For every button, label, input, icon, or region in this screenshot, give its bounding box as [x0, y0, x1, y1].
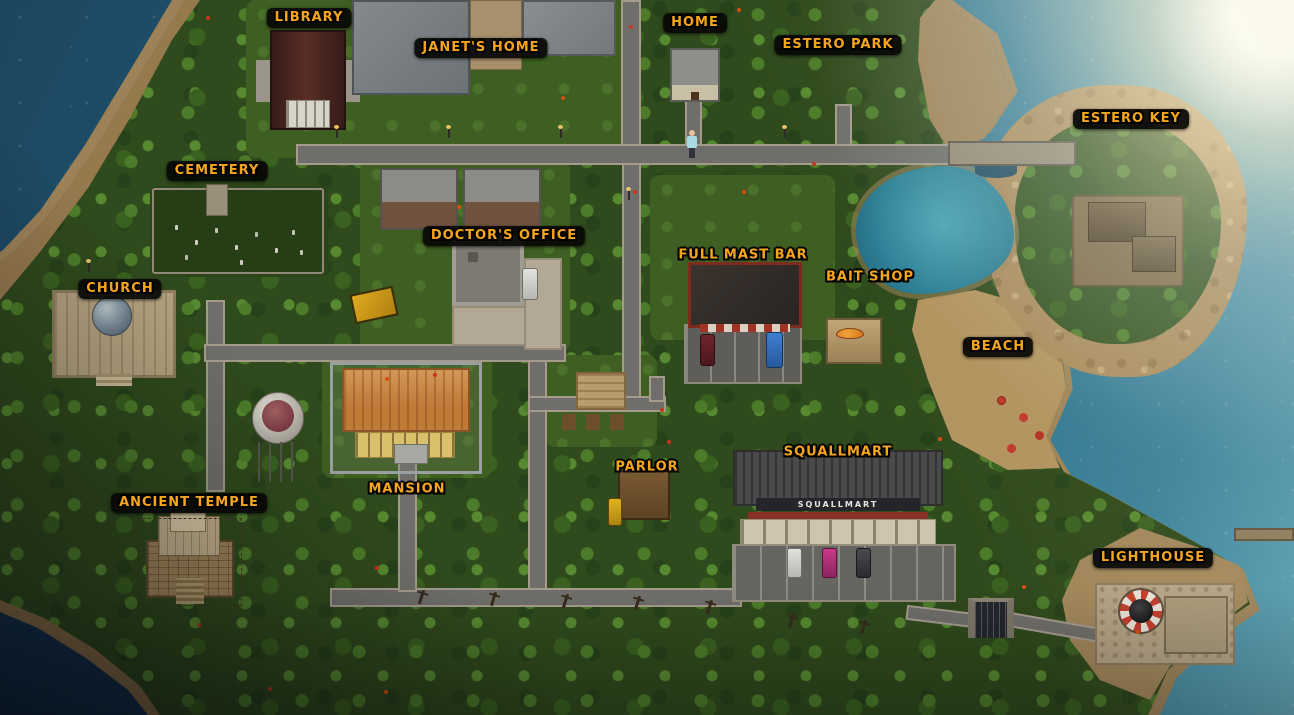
street-lamp — [88, 262, 90, 272]
map-label-lighthouse[interactable]: Lighthouse — [1093, 548, 1213, 568]
building-parlor[interactable] — [618, 470, 670, 520]
lighthouse-keeper-house — [1164, 596, 1228, 654]
estero-key-bridge — [948, 141, 1076, 166]
map-label-doctors-office[interactable]: Doctor's Office — [423, 226, 585, 246]
squallmart-awning — [748, 512, 928, 519]
park-pavilion — [576, 372, 626, 410]
midtown-street — [622, 163, 641, 403]
street-lamp — [560, 128, 562, 138]
church-dome — [92, 296, 132, 336]
beach-umbrellas — [997, 396, 1006, 405]
townhouse-west — [380, 168, 458, 230]
water-tower-legs — [258, 442, 298, 482]
map-label-home[interactable]: Home — [663, 13, 727, 33]
bar-lot-exit — [649, 376, 665, 402]
car-white-doctors — [522, 268, 538, 300]
cross-street — [204, 344, 566, 362]
map-label-cemetery[interactable]: Cemetery — [167, 161, 268, 181]
car-magenta-squallmart — [822, 548, 837, 578]
library-portico — [286, 100, 330, 128]
player-legs — [689, 148, 695, 158]
gravestones — [175, 225, 178, 230]
street-lamp — [336, 128, 338, 138]
map-label-mansion[interactable]: Mansion — [368, 482, 445, 497]
fishing-pier — [1234, 528, 1294, 541]
map-label-church[interactable]: Church — [78, 279, 161, 299]
car-white-squallmart — [787, 548, 802, 578]
player-character — [686, 130, 698, 160]
main-street — [296, 144, 962, 165]
mansion-entry-steps — [394, 444, 428, 464]
squallmart-parking — [732, 544, 956, 602]
building-mansion[interactable] — [342, 368, 470, 432]
doctors-office-ac-unit — [468, 252, 478, 262]
park-spur-road — [835, 104, 852, 146]
squallmart-storefront-sign: SQUALLMART — [756, 498, 920, 511]
bridge-arch-shadow — [975, 166, 1017, 178]
water-tower-dome — [262, 400, 294, 432]
library-planter-west — [256, 60, 270, 102]
townhouse-east — [463, 168, 541, 230]
map-label-beach[interactable]: Beach — [963, 337, 1033, 357]
building-full-mast-bar[interactable] — [688, 262, 802, 328]
island-map: SQUALLMART Library Janet's Home — [0, 0, 1294, 715]
squallmart-facade — [740, 519, 936, 545]
park-benches — [562, 414, 632, 430]
player-shirt — [687, 136, 697, 148]
cemetery-fence[interactable] — [152, 188, 324, 274]
lighthouse-lantern — [1129, 599, 1153, 623]
map-label-parlor[interactable]: Parlor — [615, 460, 678, 475]
estate-gate — [968, 598, 1014, 638]
home-door — [691, 92, 699, 100]
building-bait-shop[interactable] — [826, 318, 882, 364]
map-label-squallmart[interactable]: Squallmart — [784, 445, 893, 460]
bait-shop-fish-sign — [836, 328, 864, 339]
temple-fence — [138, 518, 242, 606]
south-road — [330, 588, 742, 607]
car-yellow-parlor — [608, 498, 622, 526]
map-label-ancient-temple[interactable]: Ancient Temple — [111, 493, 267, 513]
map-label-janets-home[interactable]: Janet's Home — [414, 38, 547, 58]
truck-blue-bar — [766, 332, 783, 368]
street-lamp — [784, 128, 786, 138]
car-maroon-bar — [700, 334, 715, 366]
bar-awning — [700, 324, 790, 332]
map-label-bait-shop[interactable]: Bait Shop — [826, 270, 914, 285]
mansion-driveway — [398, 458, 417, 592]
estero-key-hut-small — [1132, 236, 1176, 272]
car-dark-squallmart — [856, 548, 871, 578]
cemetery-gate — [206, 184, 228, 216]
red-flowers — [206, 16, 210, 20]
estate-street — [621, 0, 641, 146]
janets-courtyard — [470, 0, 522, 70]
map-label-estero-key[interactable]: Estero Key — [1073, 109, 1189, 129]
street-lamp — [448, 128, 450, 138]
map-label-full-mast-bar[interactable]: Full Mast Bar — [678, 248, 807, 263]
islet — [995, 296, 1011, 306]
building-doctors-office[interactable] — [452, 236, 524, 306]
church-street — [206, 300, 225, 492]
map-label-estero-park[interactable]: Estero Park — [774, 35, 901, 55]
map-label-library[interactable]: Library — [267, 8, 352, 28]
street-lamp — [628, 190, 630, 200]
church-steps — [96, 374, 132, 386]
